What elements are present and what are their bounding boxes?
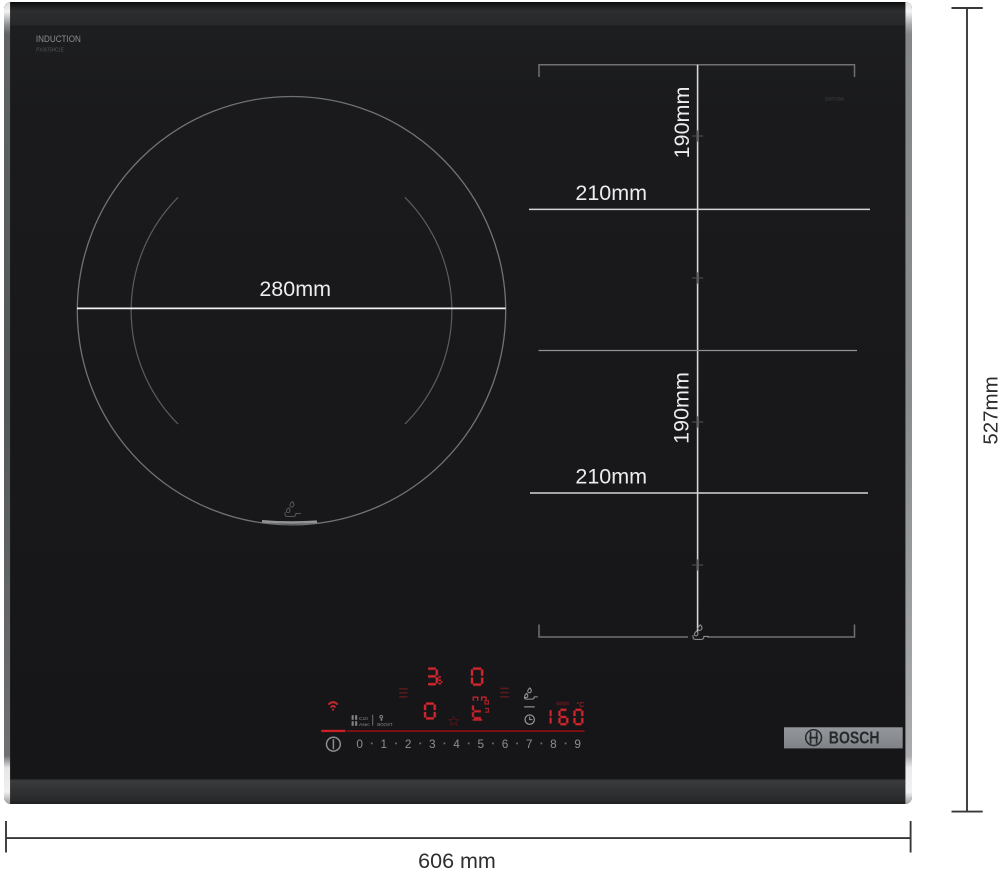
svg-text:190mm: 190mm — [670, 372, 694, 444]
svg-text:3: 3 — [429, 737, 436, 751]
svg-text:9: 9 — [574, 737, 581, 751]
svg-text:280mm: 280mm — [259, 277, 331, 301]
svg-text:7: 7 — [526, 737, 533, 751]
svg-text:5: 5 — [478, 737, 485, 751]
svg-text:606 mm: 606 mm — [418, 849, 496, 870]
svg-text:0: 0 — [356, 737, 363, 751]
svg-text:1: 1 — [381, 737, 388, 751]
svg-text:527mm: 527mm — [979, 376, 1000, 444]
svg-text:190mm: 190mm — [670, 87, 694, 159]
svg-text:Asec: Asec — [359, 722, 370, 728]
svg-text:6: 6 — [502, 737, 509, 751]
svg-text:210mm: 210mm — [575, 181, 647, 205]
svg-text:C10: C10 — [359, 716, 368, 722]
svg-text:4: 4 — [453, 737, 460, 751]
svg-text:210mm: 210mm — [575, 465, 647, 489]
svg-text:BOOST: BOOST — [377, 722, 393, 727]
svg-text:2: 2 — [405, 737, 412, 751]
svg-text:SCHOTT CERAN: SCHOTT CERAN — [825, 97, 844, 102]
svg-text:°C: °C — [576, 701, 584, 709]
svg-text:8: 8 — [550, 737, 557, 751]
svg-text:PXJ675HC1E: PXJ675HC1E — [36, 48, 64, 54]
svg-text:BOSCH: BOSCH — [829, 728, 880, 748]
svg-text:INDUCTION: INDUCTION — [36, 34, 81, 44]
